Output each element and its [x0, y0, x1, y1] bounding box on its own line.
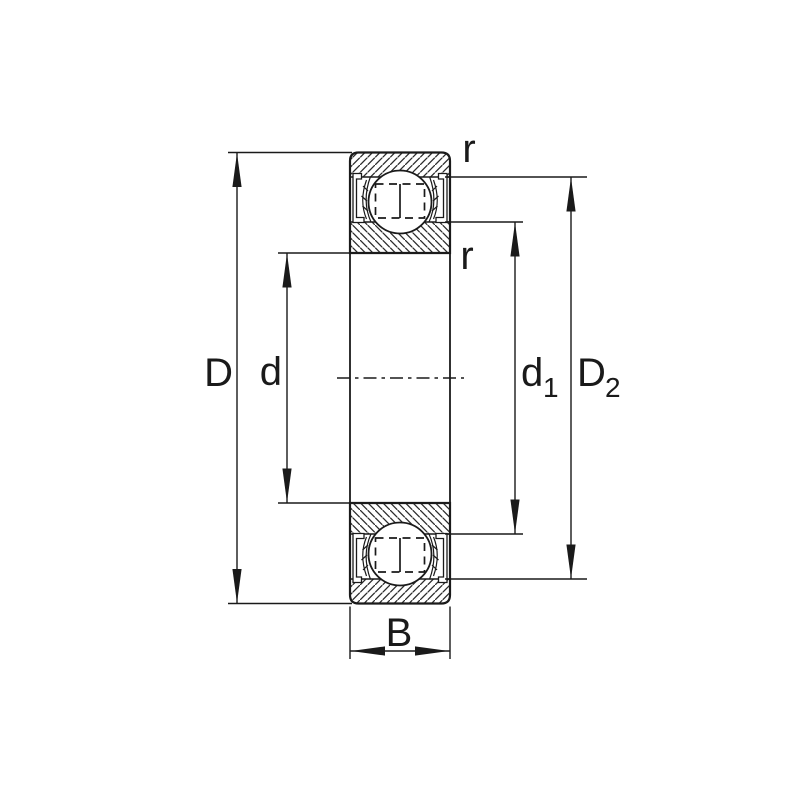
arrow-D2-top	[566, 178, 575, 212]
label-r-inner: r	[460, 234, 473, 278]
bearing-section-top	[350, 153, 450, 254]
label-D2-sub: 2	[605, 372, 621, 403]
label-D2-base: D	[577, 351, 606, 395]
arrow-D-top	[232, 153, 241, 187]
arrow-d1-bottom	[510, 500, 519, 534]
label-d1-base: d	[521, 351, 543, 395]
arrow-d-top	[282, 254, 291, 288]
label-r-outer: r	[462, 127, 475, 171]
arrow-D-bottom	[232, 569, 241, 603]
label-d1-sub: 1	[543, 372, 559, 403]
bearing-dimension-diagram-page: D d d 1 D 2 B r r	[0, 0, 800, 800]
label-B: B	[386, 611, 413, 655]
arrow-d-bottom	[282, 469, 291, 503]
label-D: D	[204, 351, 233, 395]
arrow-D2-bottom	[566, 545, 575, 579]
bearing-cross-section-diagram: D d d 1 D 2 B r r	[0, 0, 800, 800]
arrow-B-left	[351, 646, 385, 655]
dimension-B: B	[350, 607, 450, 660]
arrow-d1-top	[510, 223, 519, 257]
arrow-B-right	[415, 646, 449, 655]
label-d: d	[260, 350, 282, 394]
bearing-section-bottom	[350, 503, 450, 604]
